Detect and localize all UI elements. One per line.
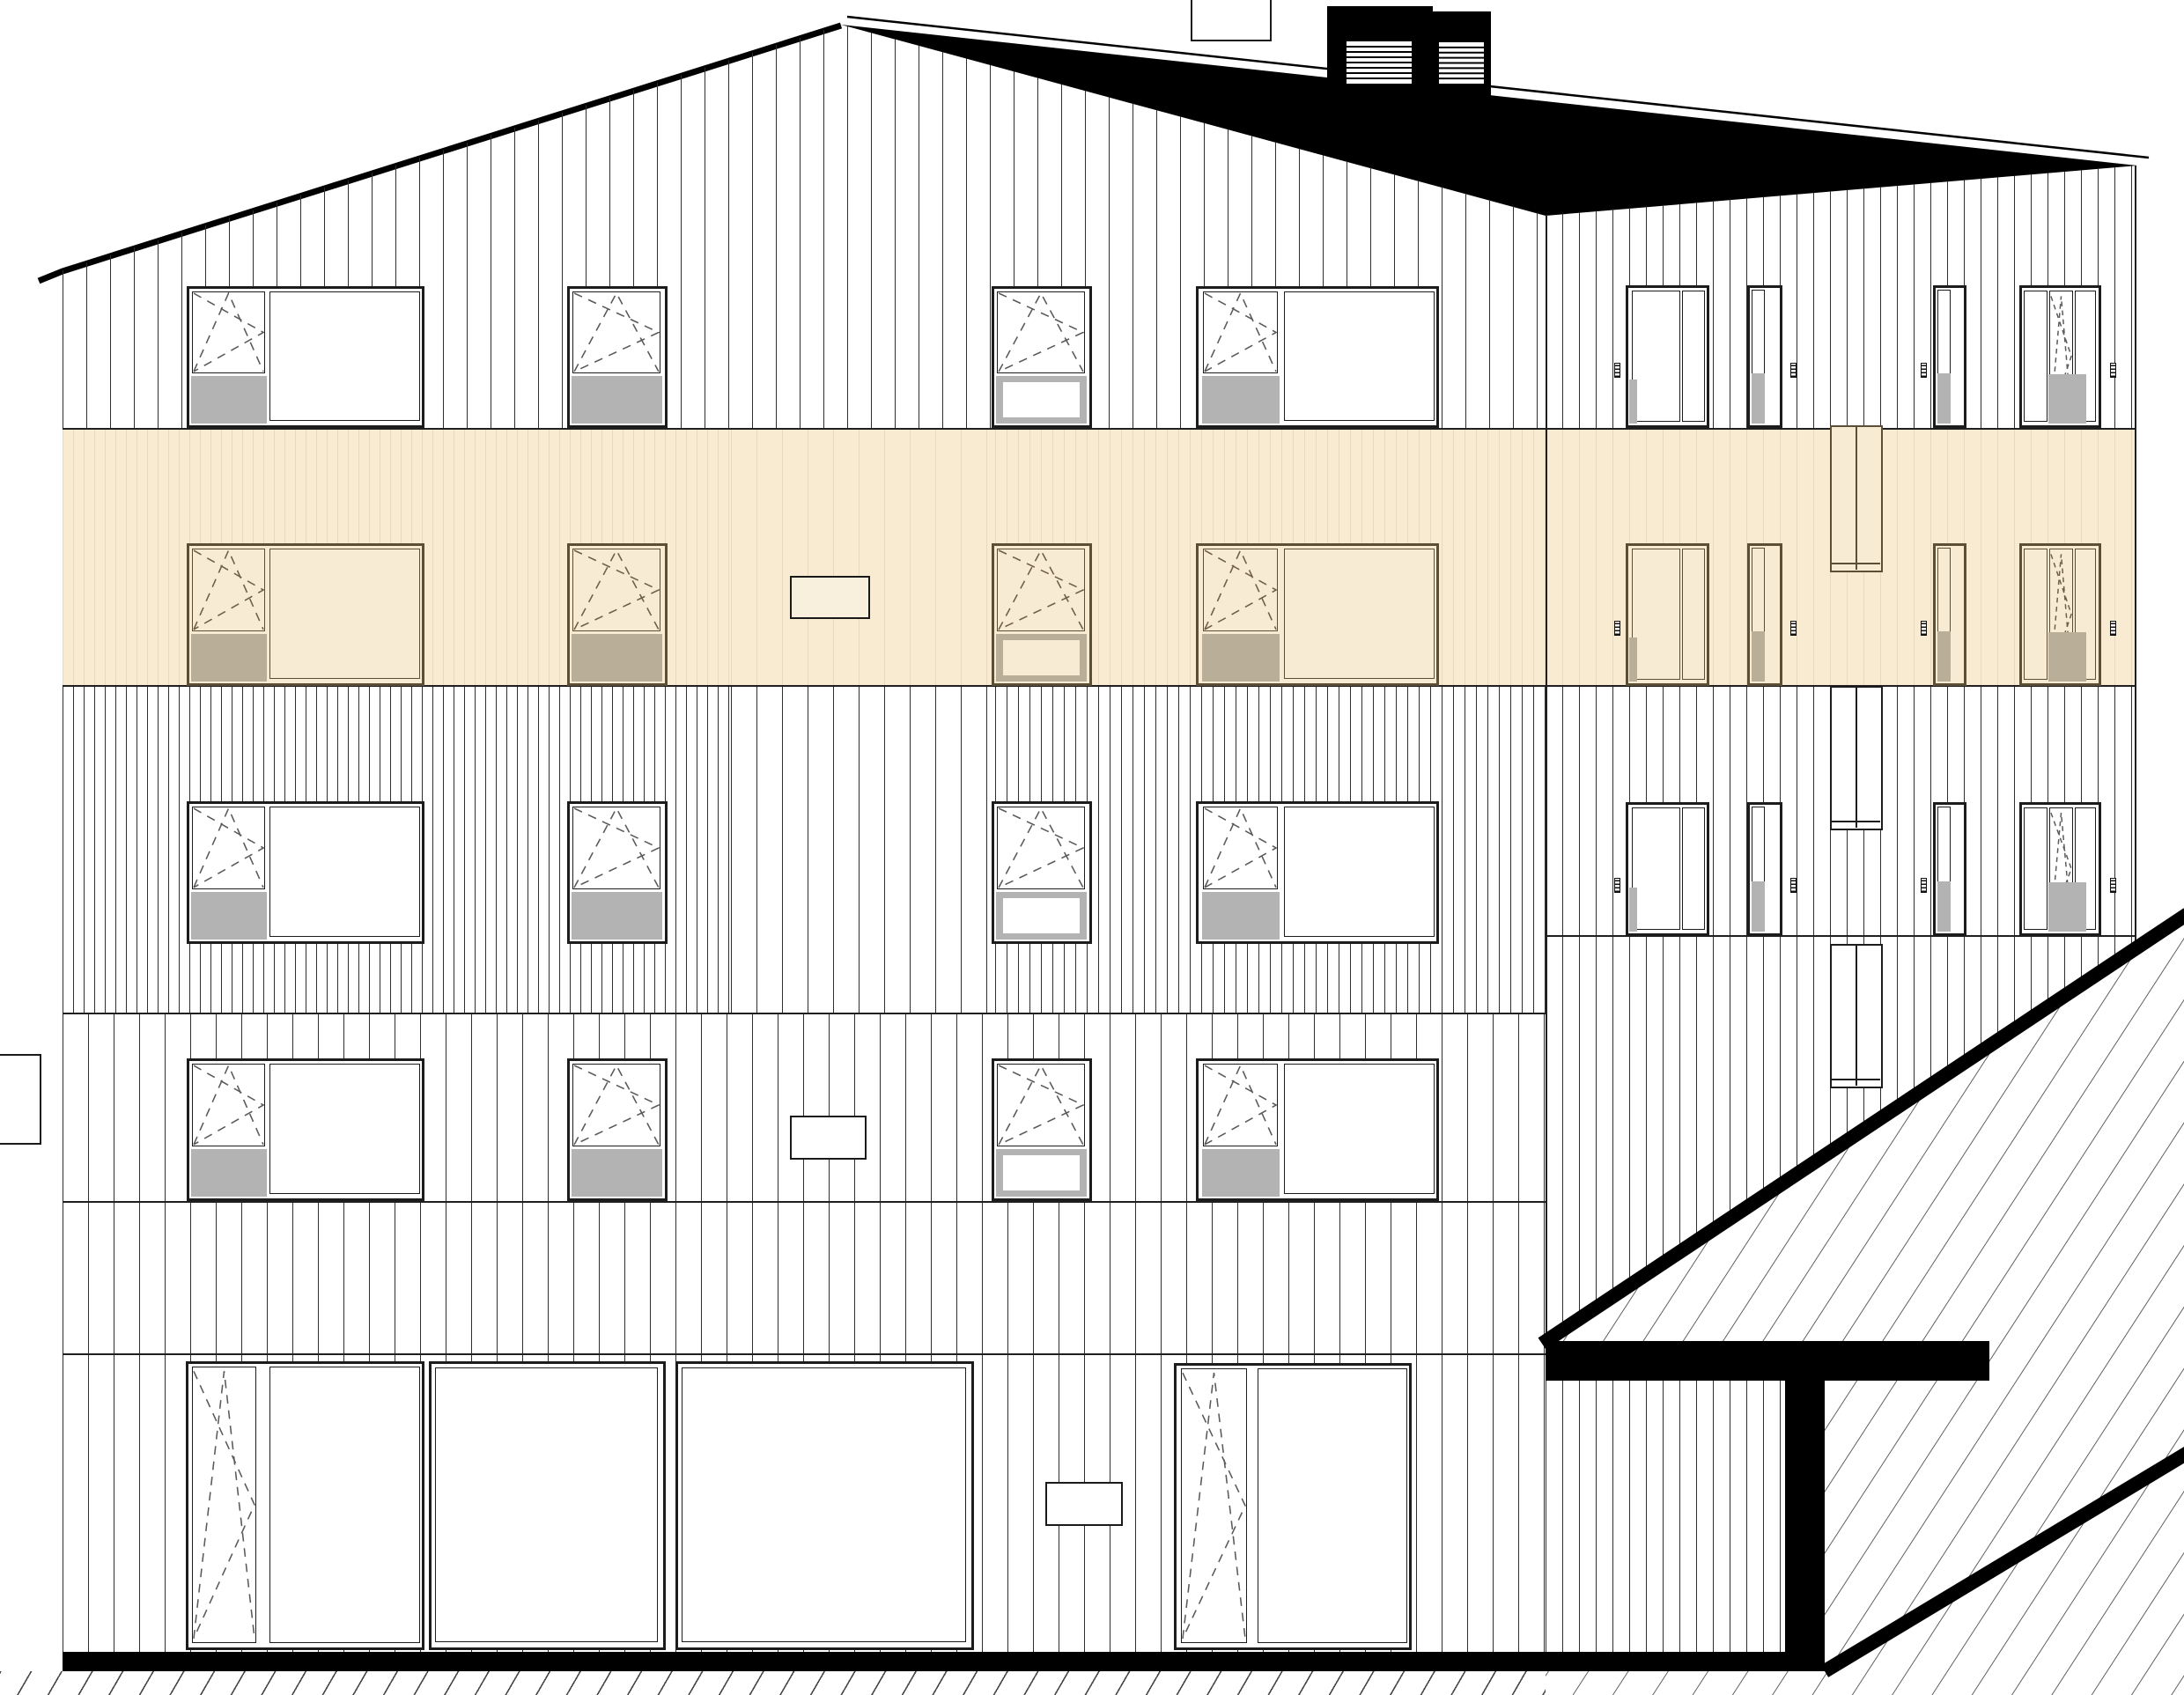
foreground-detail-layer	[0, 0, 2184, 1695]
porch-base-bar	[1546, 1652, 1825, 1671]
porch-wall-siding	[1546, 1381, 1785, 1652]
elevation-drawing	[0, 0, 2184, 1695]
